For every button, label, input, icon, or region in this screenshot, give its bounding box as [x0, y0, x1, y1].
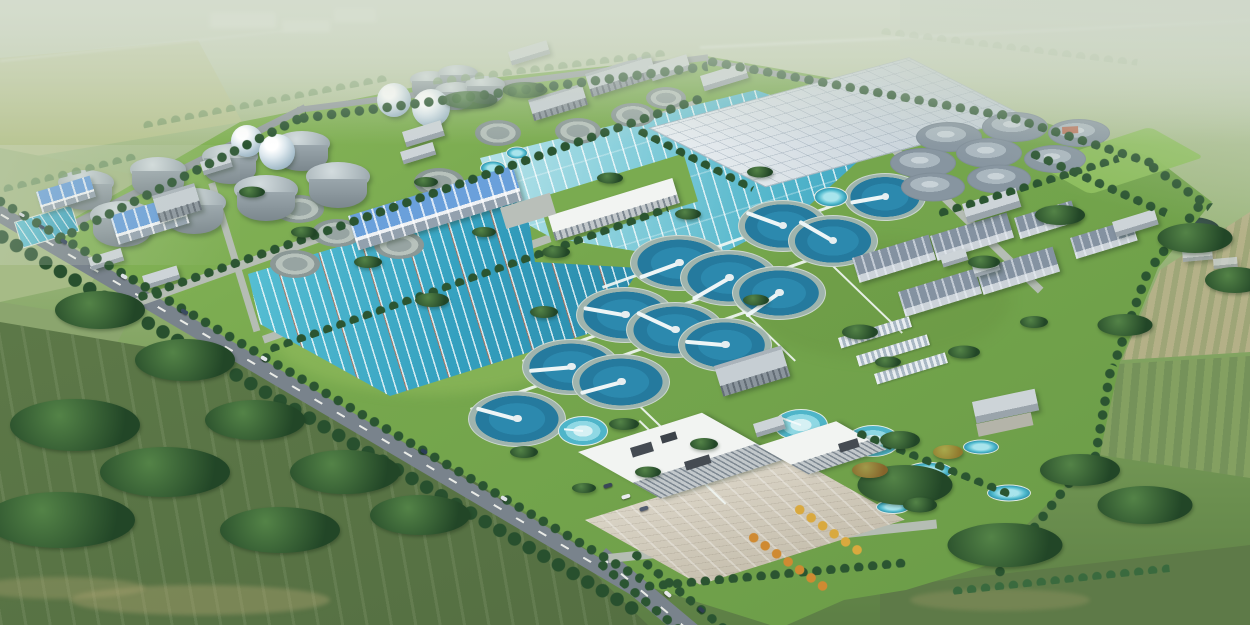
- tree-clump: [842, 325, 878, 340]
- distant-building-smudge-1: [210, 12, 276, 28]
- tree-clump: [1098, 486, 1193, 524]
- tree-clump: [597, 173, 623, 184]
- tree-clump: [290, 450, 400, 494]
- tree-clump: [443, 91, 498, 109]
- flat-tank: [475, 120, 521, 146]
- tree-clump: [675, 209, 701, 220]
- tree-clump: [635, 467, 661, 478]
- tree-clump: [354, 256, 382, 268]
- tree-clump: [239, 187, 265, 198]
- tree-clump: [370, 495, 470, 535]
- digester-tank: [306, 162, 370, 208]
- tree-clump: [205, 400, 305, 440]
- tree-clump: [948, 346, 980, 359]
- covered-tank: [901, 173, 965, 202]
- tree-clump: [968, 256, 1000, 269]
- clarifier: [572, 354, 670, 410]
- distant-building-smudge-3: [334, 8, 376, 22]
- tree-clump: [1158, 223, 1233, 253]
- tree-clump: [1035, 205, 1085, 225]
- dirt-streak-south-3: [910, 589, 1090, 611]
- garden-tree: [903, 498, 937, 513]
- tree-clump: [414, 177, 438, 187]
- covered-tank: [956, 138, 1022, 168]
- garden-tree-orange: [852, 462, 888, 478]
- garden-tree-orange: [933, 445, 963, 459]
- tree-clump: [10, 399, 140, 451]
- tree-clump: [503, 82, 548, 98]
- tree-clump: [572, 483, 596, 493]
- tree-clump: [472, 227, 496, 237]
- clarifier: [732, 266, 826, 320]
- flat-tank: [270, 250, 320, 278]
- tree-clump: [530, 306, 558, 318]
- tree-clump: [609, 418, 639, 430]
- tree-clump: [291, 227, 317, 238]
- tree-clump: [1098, 314, 1153, 336]
- digester-tank: [234, 175, 298, 221]
- tree-clump: [100, 447, 230, 497]
- small-pond: [814, 187, 848, 207]
- tree-clump: [747, 167, 773, 178]
- light-tank: [558, 416, 608, 446]
- tree-clump: [220, 507, 340, 553]
- garden-tree: [880, 431, 920, 449]
- tree-clump: [875, 357, 901, 368]
- tree-clump: [542, 246, 570, 258]
- treatment-plant-aerial-rendering: [0, 0, 1250, 625]
- tree-clump: [1020, 316, 1048, 328]
- garden-pond: [963, 440, 999, 455]
- tree-clump: [743, 295, 769, 306]
- tree-clump: [948, 523, 1063, 567]
- tree-clump: [690, 438, 718, 450]
- tree-clump: [415, 293, 449, 307]
- tree-clump: [510, 446, 538, 458]
- tree-clump: [55, 291, 145, 329]
- tree-clump: [135, 339, 235, 381]
- clarifier: [468, 391, 566, 447]
- tree-clump: [1040, 454, 1120, 486]
